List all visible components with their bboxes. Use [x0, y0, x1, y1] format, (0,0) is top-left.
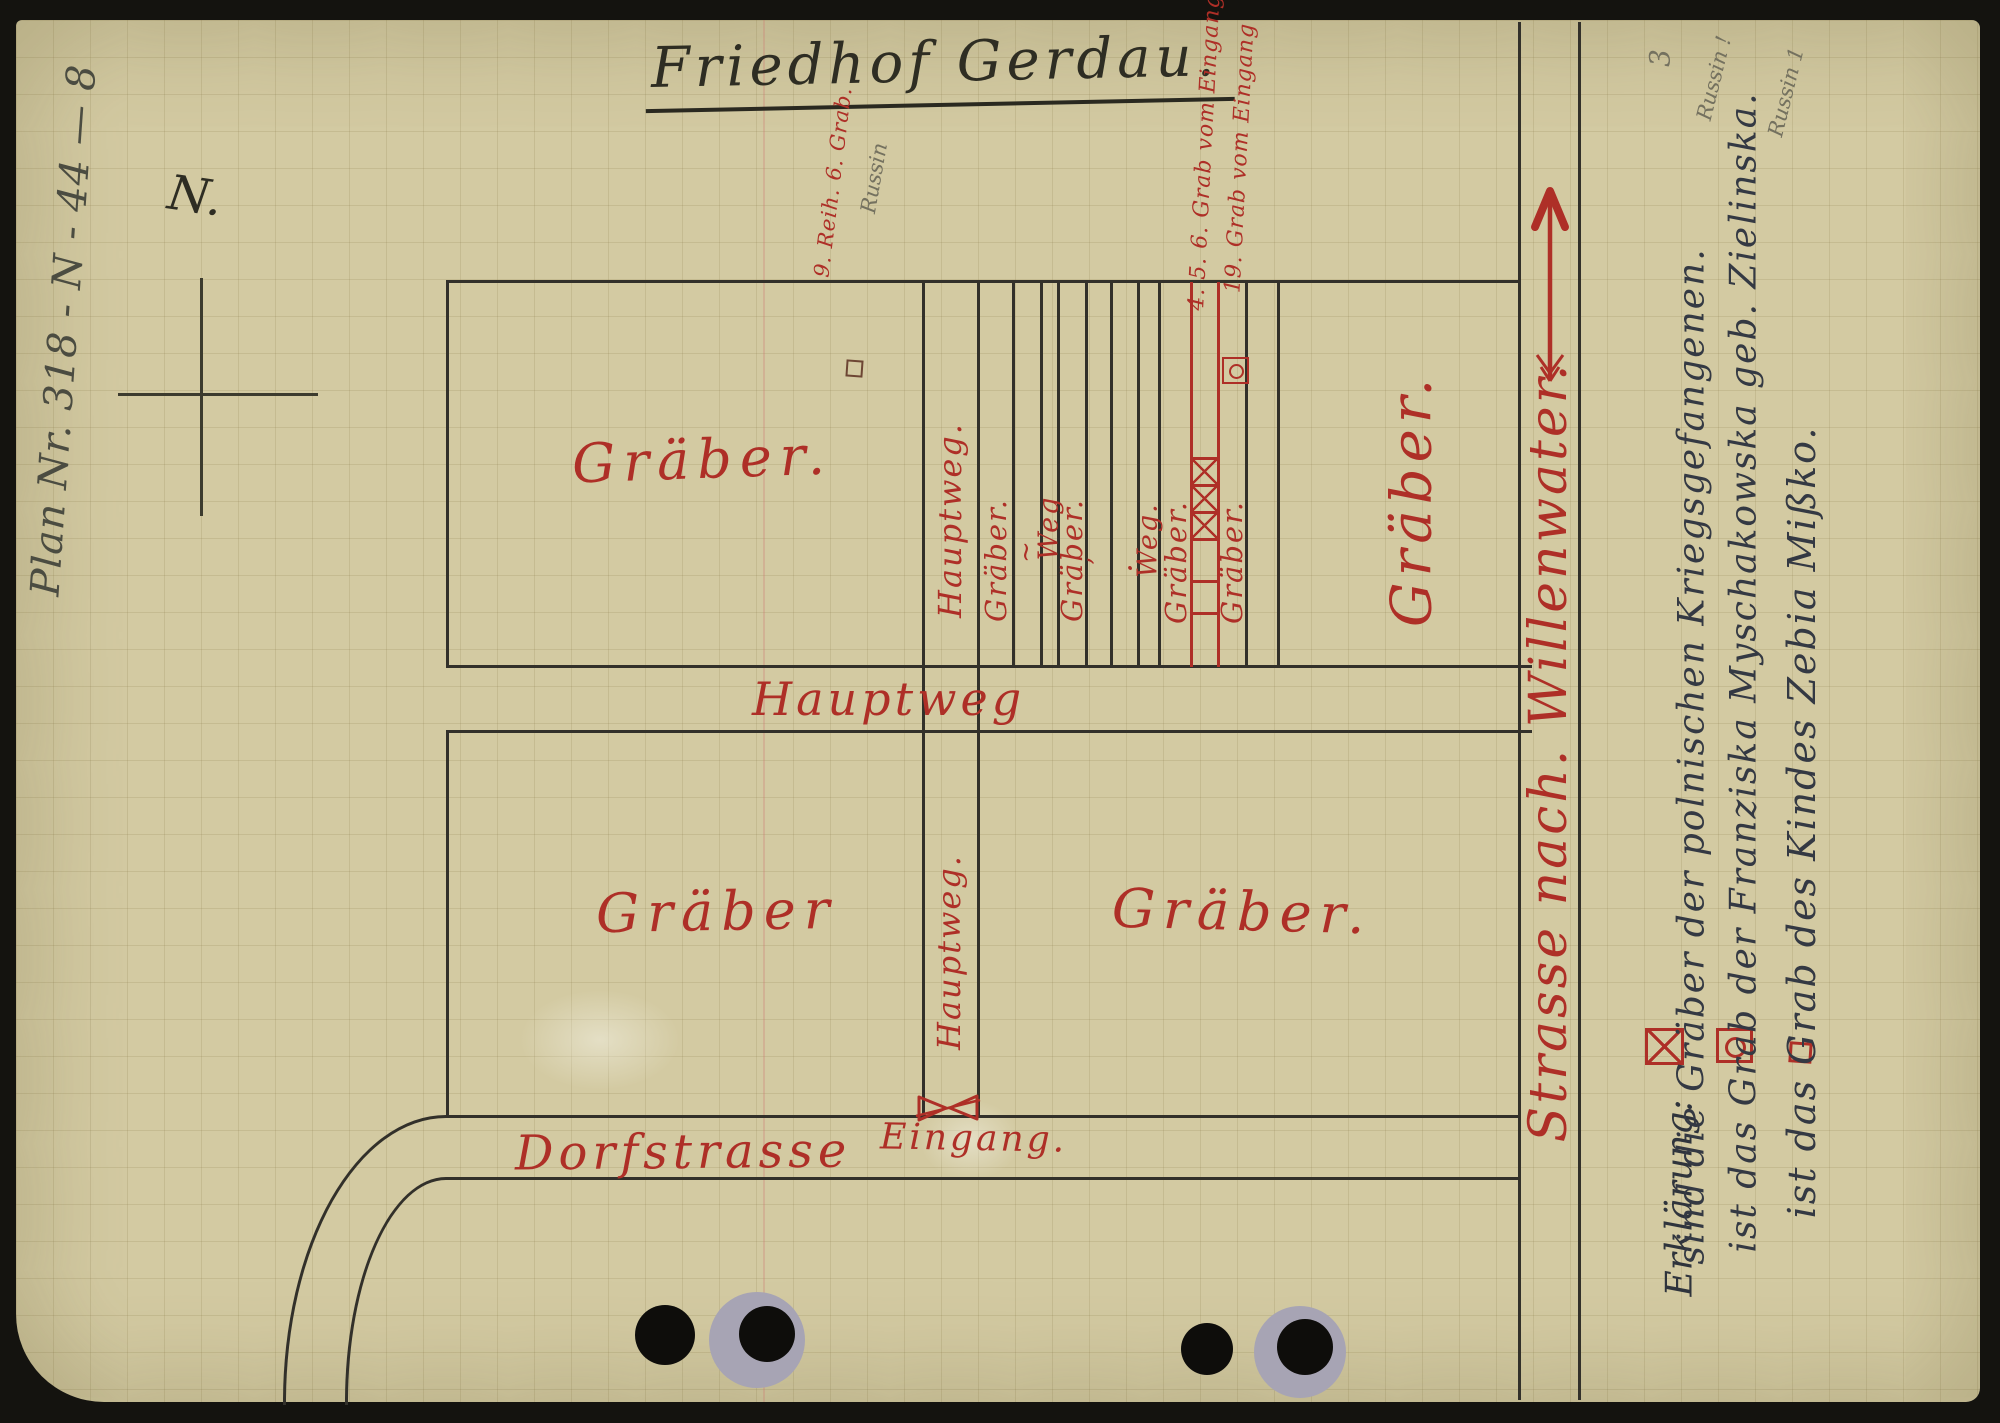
north-cross-horizontal [118, 393, 318, 396]
legend-entry-2-text: ist das Grab der Franziska Myschakowska … [1724, 91, 1765, 1252]
main-path-band-label: Hauptweg [752, 672, 1025, 726]
strip-line [1110, 280, 1113, 668]
band-top-line [446, 665, 1532, 668]
lower-path-strip-label: Hauptweg. [930, 854, 968, 1050]
marked-grave-x-icon [1192, 459, 1217, 484]
strip-line [1137, 280, 1140, 668]
north-label: N. [164, 165, 225, 228]
page-title: Friedhof Gerdau. [644, 24, 1234, 113]
road-to-willenwater-label: Strasse nach. Willenwater. [1519, 362, 1579, 1143]
punch-hole [1277, 1319, 1333, 1375]
marker-circle-icon [1229, 364, 1244, 379]
punch-hole [1181, 1323, 1233, 1375]
legend-entry-1-text: sind die Gräber der polnischen Kriegsgef… [1672, 247, 1713, 1264]
legend-entry-3-text: ist das Grab des Kindes Zebia Mißko. [1780, 426, 1824, 1219]
band-bottom-line [446, 730, 1532, 733]
strip-label-graeber-4: Gräber. [1215, 500, 1249, 624]
punch-hole [739, 1306, 795, 1362]
entrance-bowtie-icon [914, 1092, 982, 1124]
lower-field-left-line [446, 730, 449, 1118]
upper-field-top-line [446, 280, 1521, 283]
scanned-cemetery-plan: Friedhof Gerdau. Plan Nr. 318 - N - 44 —… [0, 0, 2000, 1423]
lower-right-field-label: Gräber. [1111, 877, 1373, 947]
north-cross-vertical [200, 278, 203, 516]
grave-marker-square-icon [845, 359, 863, 377]
upper-left-field-label: Gräber. [571, 423, 834, 495]
strip-line [1277, 280, 1280, 668]
strip-line [1040, 280, 1043, 668]
grave-marker-circle-box-icon [1222, 357, 1249, 384]
punch-hole-reinforcement [1254, 1306, 1346, 1398]
right-field-label: Gräber. [1380, 373, 1445, 627]
upper-field-left-line [446, 280, 449, 668]
lower-left-field-label: Gräber [595, 878, 838, 945]
corner-pencil-number: 3 [1644, 49, 1677, 67]
direction-arrow-icon [1527, 183, 1573, 387]
village-street-label: Dorfstrasse [515, 1123, 852, 1182]
punch-hole [635, 1305, 695, 1365]
punch-hole-reinforcement [709, 1292, 805, 1388]
marked-grave-x-icon [1192, 486, 1217, 511]
upper-path-strip-label: Hauptweg. [931, 422, 969, 618]
paper-stain [520, 990, 680, 1090]
marked-grave-x-icon [1192, 513, 1217, 538]
strip-label-graeber-3: Gräber. [1159, 500, 1193, 624]
strip-label-graeber-1: Gräber. [979, 498, 1013, 622]
